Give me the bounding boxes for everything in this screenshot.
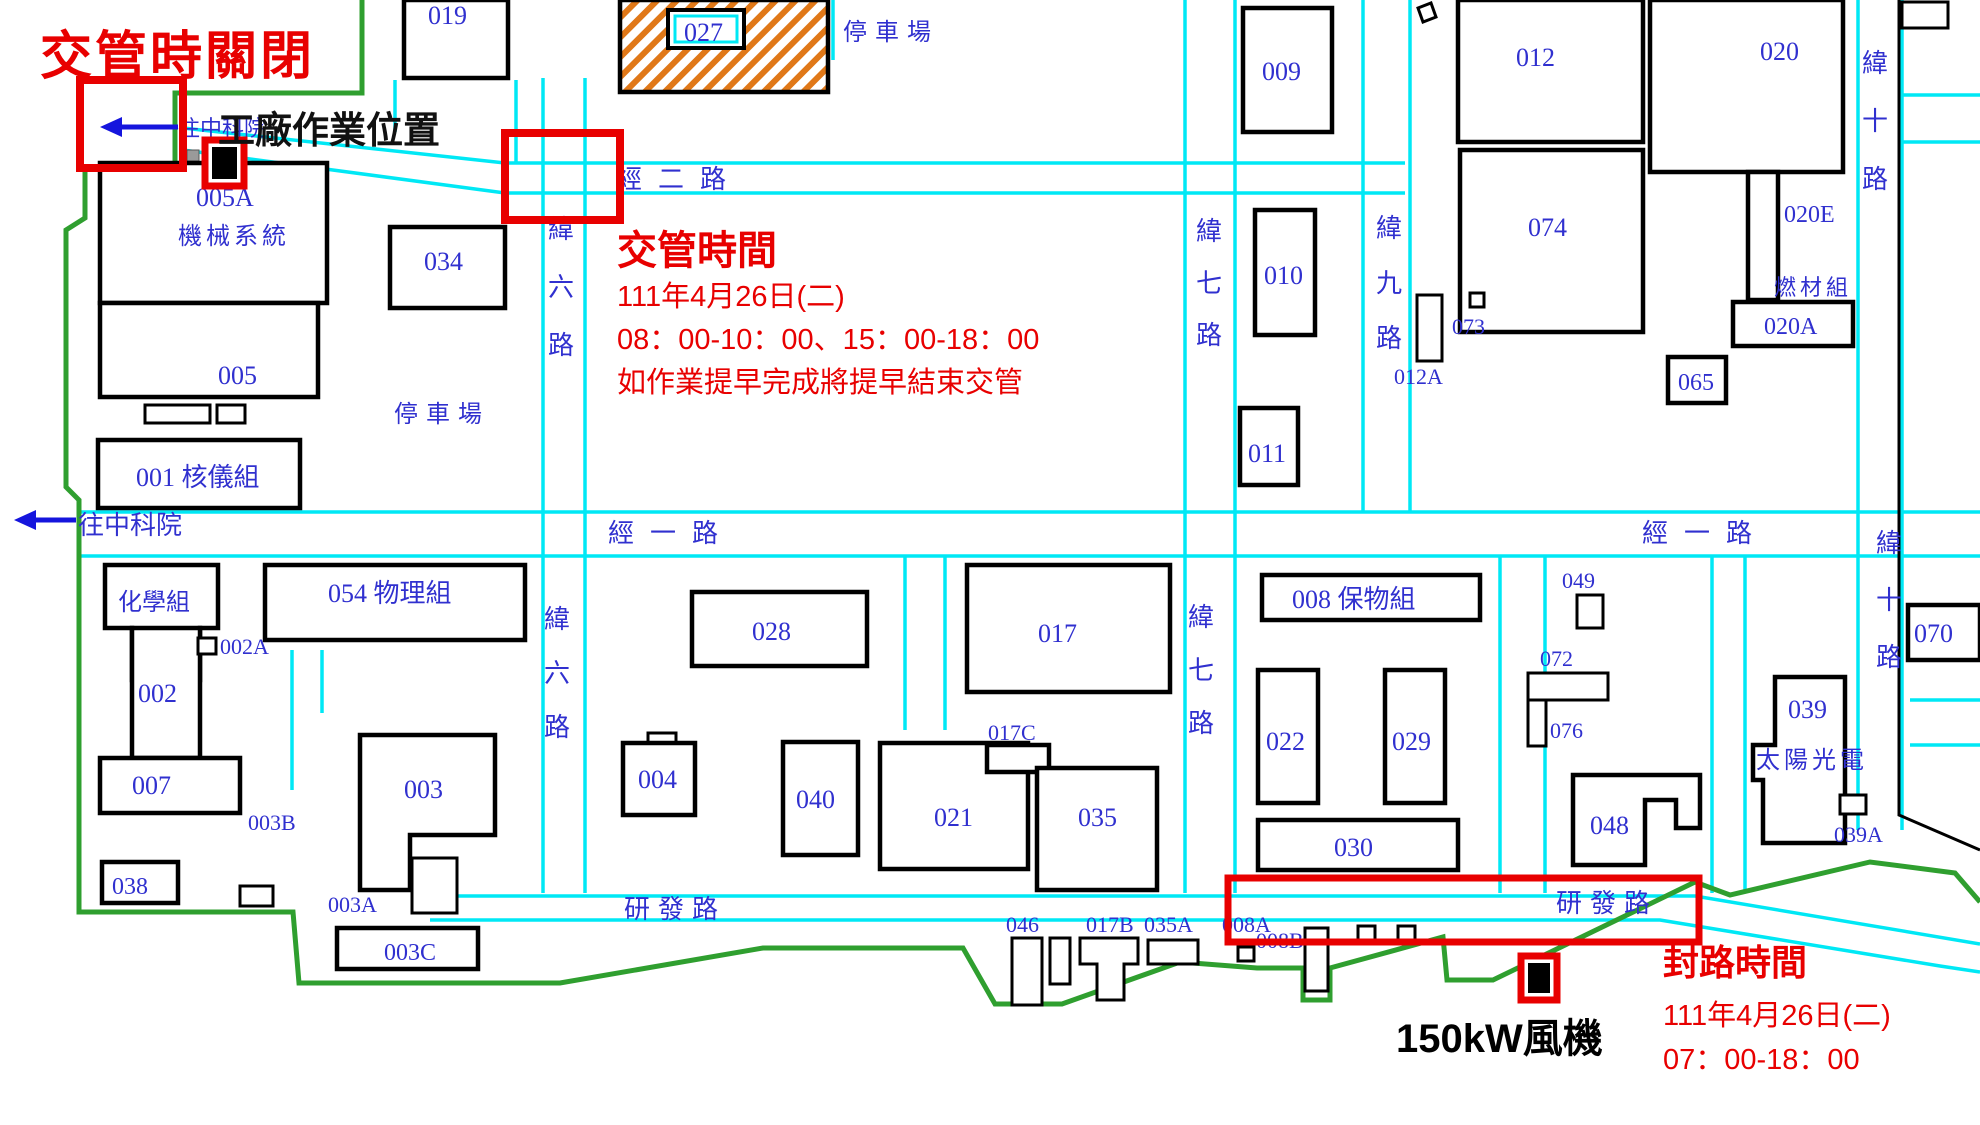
building-label-012: 012 [1516,43,1555,72]
direction-arrow-head [100,117,122,137]
building-label-048: 048 [1590,811,1629,840]
building-label-017: 017 [1038,619,1077,648]
building-072 [1528,673,1608,700]
road-closure-time-title: 封路時間 [1663,934,1807,986]
building-label-002A: 002A [220,634,269,659]
building-sublabel-039: 太陽光電 [1756,747,1868,774]
road-name: 緯 [544,605,570,634]
building-049 [1577,595,1603,628]
road-name: 路 [544,713,570,742]
structure [1050,938,1070,984]
structure-grey [187,150,199,161]
area-label: 003B [248,810,296,835]
building-label-072: 072 [1540,646,1573,671]
annotation-box [505,133,620,220]
road-name: 路 [1862,165,1888,194]
building-label-073: 073 [1452,314,1485,339]
road-name: 緯 [1188,603,1214,632]
traffic-control-time-title: 交管時間 [617,218,777,276]
building-002A [198,638,216,654]
direction-arrow-head [14,510,36,530]
structure [1358,926,1375,940]
area-label: 燃材組 [1774,275,1852,300]
closed-during-control-label: 交管時關閉 [40,14,315,89]
building-012A [1417,295,1442,361]
road-name: 六 [548,273,574,302]
building-sublabel-005A: 機械系統 [178,223,290,250]
road-line [183,150,1405,193]
building-label-074: 074 [1528,213,1567,242]
building-label-054: 054 物理組 [328,579,452,608]
building-005 [100,303,318,397]
road-name: 緯 [1876,529,1902,558]
structure [217,405,245,423]
building-label-020: 020 [1760,37,1799,66]
building-label-003C: 003C [384,940,436,966]
building-label-030: 030 [1334,833,1373,862]
road-name: 路 [548,331,574,360]
building-label-009: 009 [1262,57,1301,86]
building-label-040: 040 [796,785,835,814]
road-name: 路 [1188,709,1214,738]
road-closure-hours: 07：00-18：00 [1663,1038,1891,1082]
area-label: 停車場 [843,19,939,46]
road-closure-time-details: 111年4月26日(二) 07：00-18：00 [1663,994,1891,1082]
road-name: 研發路 [624,895,726,924]
building-076 [1528,700,1546,746]
road-name: 經二路 [616,165,742,194]
building-046 [1012,938,1042,1005]
building-label-021: 021 [934,803,973,832]
building-label-020E: 020E [1784,202,1835,228]
building-label-017B: 017B [1086,912,1134,937]
structure [1398,926,1415,940]
road-name: 路 [1196,321,1222,350]
annotation-box [80,80,183,168]
road-name: 路 [1376,324,1402,353]
building-label-002: 002 [138,679,177,708]
road-name: 九 [1376,269,1402,298]
road-name: 十 [1862,107,1888,136]
road-name: 經一路 [608,519,734,548]
building-label-035: 035 [1078,803,1117,832]
road-closure-date: 111年4月26日(二) [1663,994,1891,1038]
building-label-008: 008 保物組 [1292,585,1416,614]
building-label-034: 034 [424,247,463,276]
building-035A [1148,940,1198,964]
structure [1902,2,1948,28]
building-label-003A: 003A [328,892,377,917]
traffic-control-time-details: 111年4月26日(二) 08：00-10：00、15：00-18：00 如作業… [617,276,1039,405]
building-label-004: 004 [638,765,677,794]
building-label-003: 003 [404,775,443,804]
structure-diamond [1418,3,1436,22]
road-name: 六 [544,659,570,688]
traffic-control-note: 如作業提早完成將提早結束交管 [617,362,1039,405]
boundary-black [1899,0,1980,850]
building-label-022: 022 [1266,727,1305,756]
building-label-007: 007 [132,771,171,800]
structure [145,405,210,423]
building-label-化學組: 化學組 [118,589,190,616]
building-039A [1840,795,1866,814]
road-name: 往中科院 [78,511,182,540]
building-label-020A: 020A [1764,314,1818,340]
building-label-001: 001 核儀組 [136,463,260,492]
building-label-029: 029 [1392,727,1431,756]
building-label-010: 010 [1264,261,1303,290]
building-003A [412,858,457,913]
building-017B [1080,938,1138,1000]
building-label-039: 039 [1788,695,1827,724]
traffic-control-hours: 08：00-10：00、15：00-18：00 [617,319,1039,362]
road-name: 緯 [1196,217,1222,246]
wind-turbine-label: 150kW風機 [1396,1006,1603,1064]
building-020 [1650,0,1843,172]
road-name: 七 [1196,269,1222,298]
building-label-070: 070 [1914,619,1953,648]
building-label-046: 046 [1006,912,1039,937]
building-label-035A: 035A [1144,912,1193,937]
road-name: 緯 [1376,214,1402,243]
building-label-027: 027 [684,18,723,47]
building-label-019: 019 [428,1,467,30]
building-008A [1238,947,1254,961]
road-name: 經一路 [1642,519,1768,548]
building-label-039A: 039A [1834,822,1883,847]
road-name: 研發路 [1556,889,1658,918]
building-label-065: 065 [1678,370,1714,396]
building-label-012A: 012A [1394,364,1443,389]
building-008B [1305,928,1328,991]
site-map-page: 019005A機械系統005001 核儀組0340270090100110120… [0,0,1980,1125]
road-name: 七 [1188,656,1214,685]
road-name: 路 [1876,643,1902,672]
building-label-076: 076 [1550,718,1583,743]
building-label-011: 011 [1248,439,1286,468]
building-label-017C: 017C [988,720,1036,745]
work-marker [1528,963,1550,993]
building-label-038: 038 [112,874,148,900]
building-label-049: 049 [1562,568,1595,593]
factory-work-location-label: 工廠作業位置 [218,100,440,154]
building-label-028: 028 [752,617,791,646]
area-label: 停車場 [394,401,490,428]
road-name: 十 [1876,586,1902,615]
structure [240,886,273,906]
traffic-control-date: 111年4月26日(二) [617,276,1039,319]
building-label-005: 005 [218,361,257,390]
road-name: 緯 [1862,49,1888,78]
building-073 [1470,293,1484,307]
